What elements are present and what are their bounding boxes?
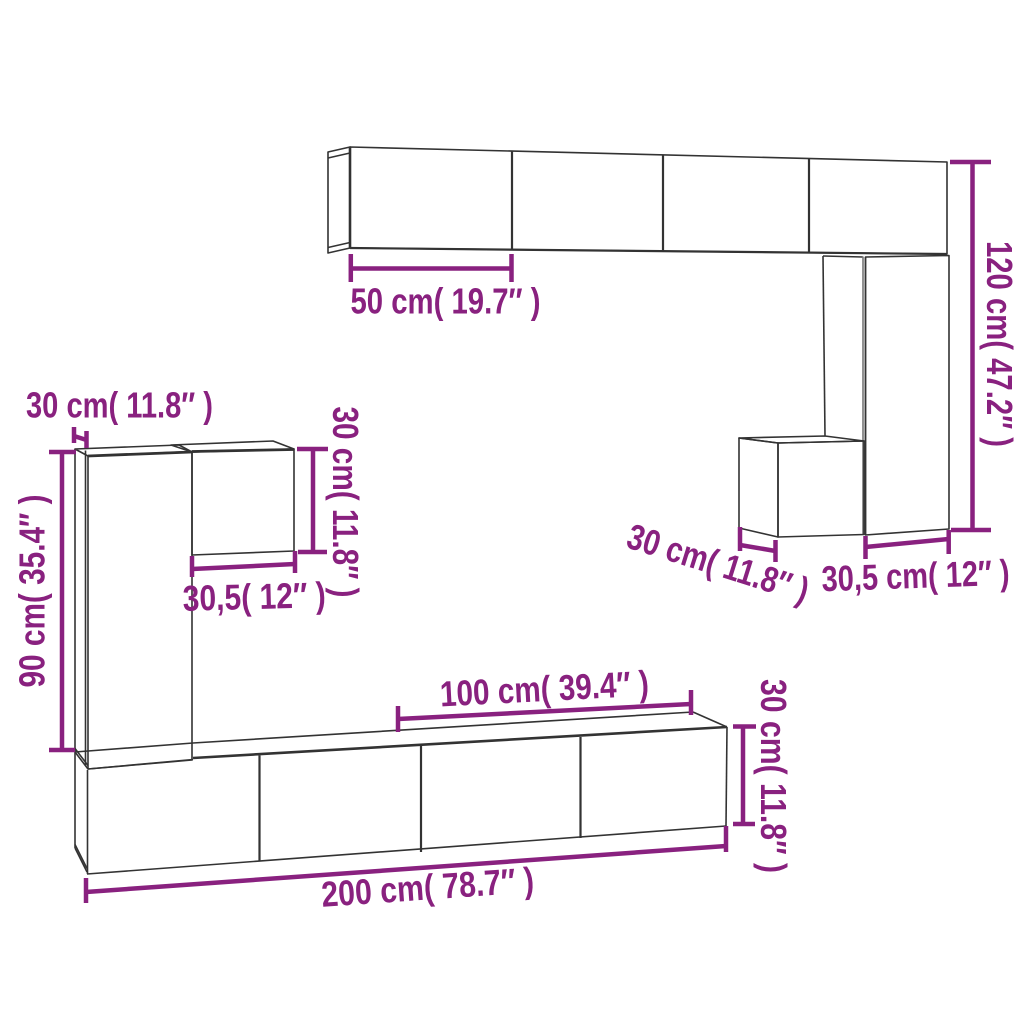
svg-text:30,5( 12″ ): 30,5( 12″ ) [182,574,326,619]
svg-text:30 cm( 11.8″ ): 30 cm( 11.8″ ) [325,407,366,598]
svg-text:90 cm( 35.4″ ): 90 cm( 35.4″ ) [12,495,53,688]
svg-text:30,5 cm( 12″ ): 30,5 cm( 12″ ) [821,552,1010,600]
svg-text:120 cm( 47.2″ ): 120 cm( 47.2″ ) [979,241,1020,447]
svg-text:30 cm( 11.8″ ): 30 cm( 11.8″ ) [753,679,794,873]
svg-text:30 cm( 11.8″ ): 30 cm( 11.8″ ) [26,385,213,426]
svg-text:50 cm( 19.7″ ): 50 cm( 19.7″ ) [351,281,541,322]
